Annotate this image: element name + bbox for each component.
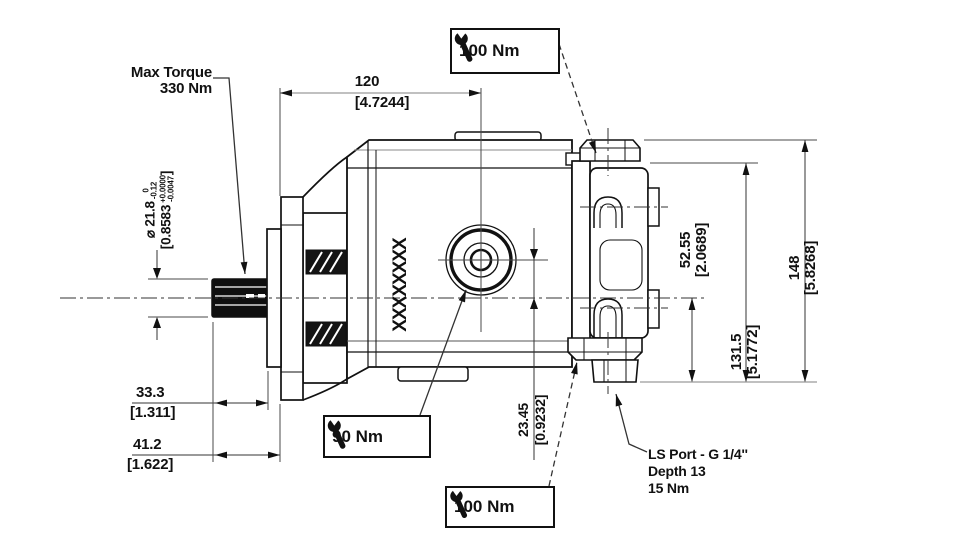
dim-41-mm: 41.2: [133, 437, 161, 453]
top-100nm-leader: [559, 44, 596, 153]
dim-148: 148 [5.8268]: [787, 241, 819, 295]
ls-port-label: LS Port - G 1/4'' Depth 13 15 Nm: [648, 446, 748, 497]
pump-housing: [347, 132, 572, 381]
bottom-plug-hex: [568, 338, 642, 360]
top-plug-hex: [580, 140, 640, 161]
torque-box-bottom: 100 Nm: [445, 486, 555, 528]
end-cap: [566, 140, 659, 382]
mounting-flange: [267, 157, 347, 400]
max-torque-leader: [213, 78, 245, 274]
ls-port-leader: [616, 394, 647, 452]
dim-shaft-diameter: ⌀ 21.80-0.12 [0.8583+0.0000-0.0047]: [143, 171, 176, 249]
bearing-lower: [306, 322, 346, 346]
dim-33-mm: 33.3: [136, 385, 164, 401]
dim-120-mm: 120: [330, 74, 404, 90]
dim-33-inch: [1.311]: [130, 405, 175, 421]
dim-23-45: 23.45 [0.9232]: [515, 395, 549, 446]
max-torque-label: Max Torque 330 Nm: [100, 65, 212, 97]
bearing-upper: [306, 250, 346, 274]
torque-box-top: 100 Nm: [450, 28, 560, 74]
wrench-icon: [447, 488, 473, 518]
ls-port-boss: [592, 360, 638, 382]
dim-41-inch: [1.622]: [127, 457, 173, 473]
bottom-100nm-leader: [549, 362, 577, 486]
dim-120-inch: [4.7244]: [336, 95, 428, 111]
body-marking: XXXXXXXX: [390, 238, 412, 331]
pump-dimensional-drawing: Max Torque 330 Nm 120 [4.7244] ⌀ 21.80-0…: [0, 0, 960, 540]
torque-box-middle: 90 Nm: [323, 415, 431, 458]
wrench-icon: [325, 417, 351, 449]
dim-52-55: 52.55 [2.0689]: [678, 223, 710, 277]
dim-131-5: 131.5 [5.1772]: [729, 325, 761, 379]
wrench-icon: [452, 30, 478, 62]
